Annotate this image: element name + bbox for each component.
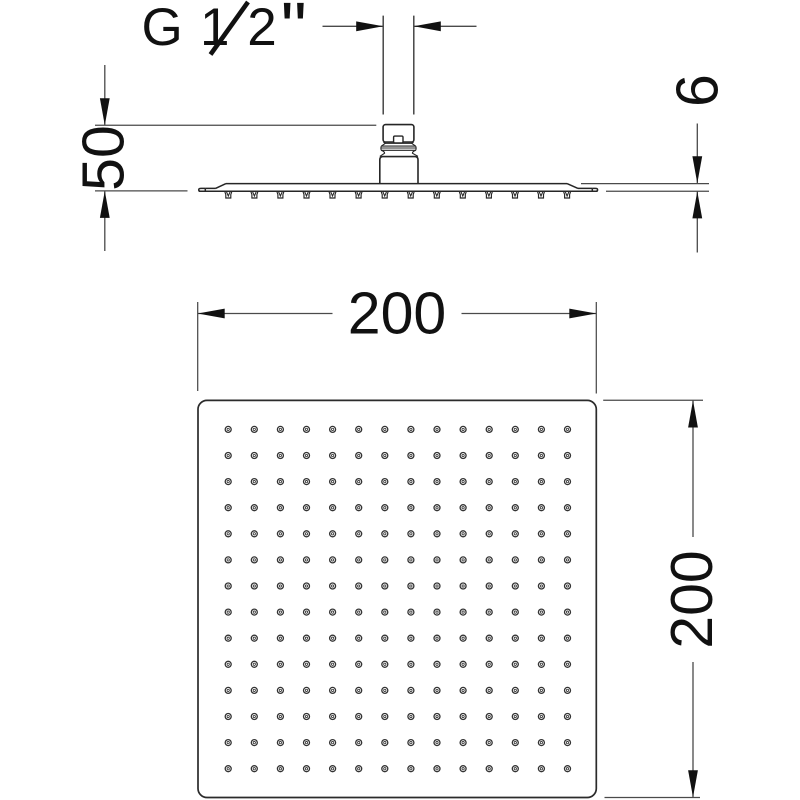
svg-text:": " — [281, 0, 307, 68]
svg-text:200: 200 — [348, 281, 446, 347]
svg-text:6: 6 — [664, 74, 730, 107]
svg-text:200: 200 — [659, 550, 725, 648]
svg-text:50: 50 — [70, 125, 136, 191]
svg-text:G: G — [142, 0, 183, 57]
svg-text:2: 2 — [247, 0, 276, 57]
